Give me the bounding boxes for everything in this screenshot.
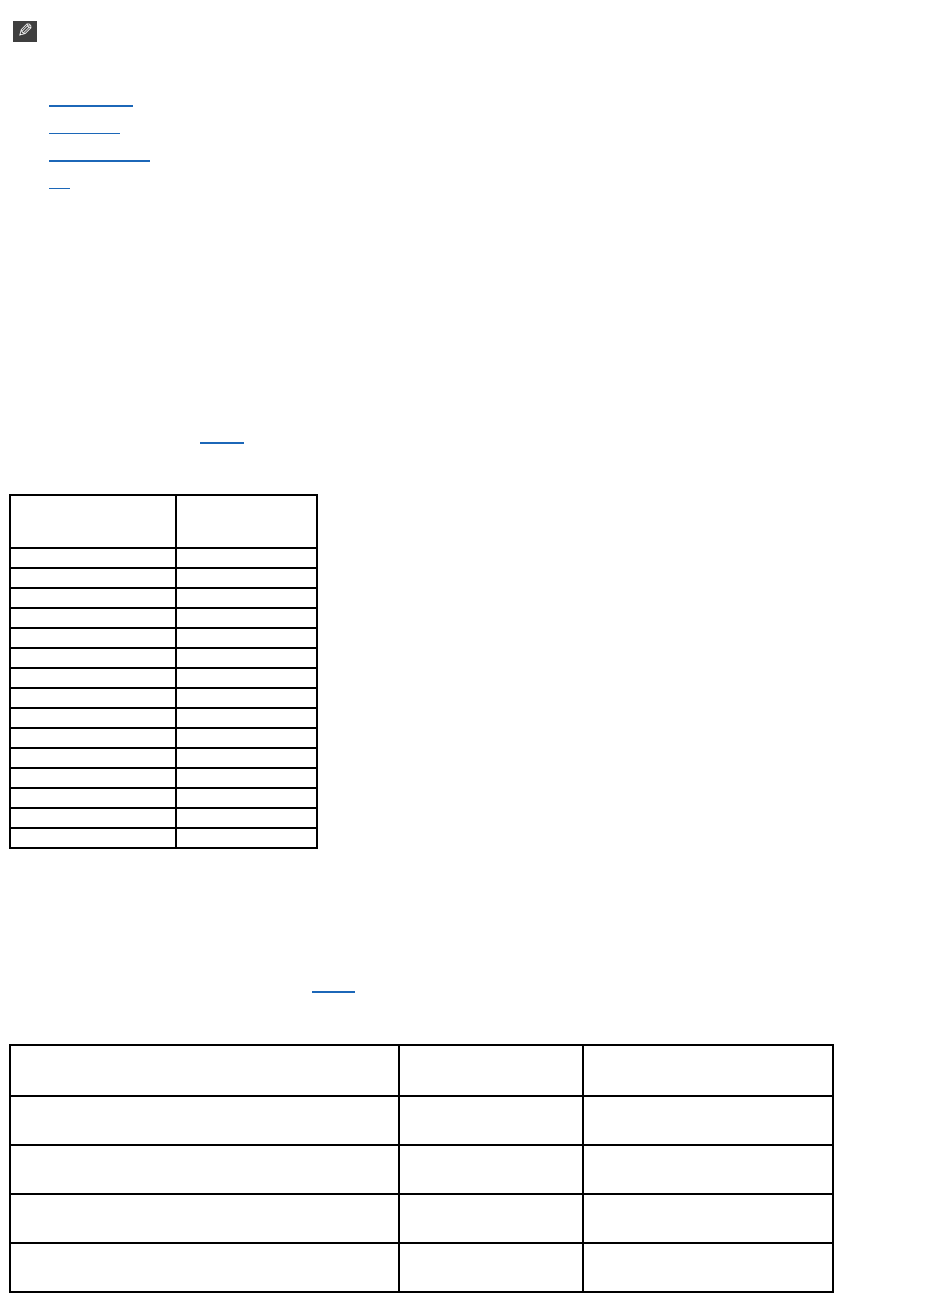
table-row <box>10 648 317 668</box>
table-header-cell <box>583 1045 833 1096</box>
table-row <box>10 628 317 648</box>
table-cell <box>10 628 176 648</box>
table-row <box>10 588 317 608</box>
page: ✎ <box>0 0 936 1296</box>
table-row <box>10 1096 833 1145</box>
table-row <box>10 728 317 748</box>
table-row <box>10 568 317 588</box>
table-cell <box>10 1145 399 1194</box>
table-cell <box>10 788 176 808</box>
table-cell <box>176 668 317 688</box>
table-cell <box>176 588 317 608</box>
table-cell <box>10 588 176 608</box>
table-row <box>10 1145 833 1194</box>
table-row <box>10 548 317 568</box>
table-cell <box>176 688 317 708</box>
table-cell <box>10 768 176 788</box>
table-cell <box>10 748 176 768</box>
table-row <box>10 788 317 808</box>
table-cell <box>176 728 317 748</box>
nav-link-3[interactable] <box>49 160 150 162</box>
table-cell <box>10 608 176 628</box>
table-cell <box>176 808 317 828</box>
note-icon: ✎ <box>13 21 37 42</box>
table-cell <box>10 708 176 728</box>
table-cell <box>176 628 317 648</box>
inline-link-2[interactable] <box>312 991 355 993</box>
table-row <box>10 708 317 728</box>
nav-link-1[interactable] <box>49 105 133 107</box>
table-2-header <box>10 1045 833 1096</box>
table-2-body <box>10 1096 833 1292</box>
table-row <box>10 1243 833 1292</box>
inline-link-1[interactable] <box>200 442 244 444</box>
table-cell <box>583 1243 833 1292</box>
table-header-cell <box>176 495 317 548</box>
nav-link-4[interactable] <box>49 188 70 190</box>
table-cell <box>10 1243 399 1292</box>
table-1-header <box>10 495 317 548</box>
table-cell <box>176 748 317 768</box>
table-cell <box>176 828 317 848</box>
table-row <box>10 768 317 788</box>
specs-table-2 <box>9 1044 834 1293</box>
table-cell <box>176 708 317 728</box>
table-1-body <box>10 548 317 848</box>
table-header-row <box>10 495 317 548</box>
nav-link-2[interactable] <box>49 133 120 135</box>
table-cell <box>10 648 176 668</box>
specs-table-1 <box>9 494 318 849</box>
table-cell <box>176 608 317 628</box>
table-cell <box>399 1194 583 1243</box>
table-cell <box>10 1096 399 1145</box>
table-cell <box>10 568 176 588</box>
table-header-cell <box>399 1045 583 1096</box>
table-cell <box>10 688 176 708</box>
table-row <box>10 748 317 768</box>
table-cell <box>399 1243 583 1292</box>
table-cell <box>399 1096 583 1145</box>
table-cell <box>10 1194 399 1243</box>
table-cell <box>10 808 176 828</box>
table-cell <box>10 548 176 568</box>
table-header-cell <box>10 495 176 548</box>
table-cell <box>176 788 317 808</box>
table-row <box>10 808 317 828</box>
table-row <box>10 688 317 708</box>
table-cell <box>10 728 176 748</box>
table-cell <box>10 668 176 688</box>
table-cell <box>399 1145 583 1194</box>
table-header-row <box>10 1045 833 1096</box>
table-cell <box>176 568 317 588</box>
table-cell <box>583 1145 833 1194</box>
table-cell <box>176 768 317 788</box>
table-cell <box>583 1096 833 1145</box>
table-row <box>10 668 317 688</box>
table-cell <box>10 828 176 848</box>
table-row <box>10 608 317 628</box>
table-row <box>10 828 317 848</box>
table-cell <box>583 1194 833 1243</box>
table-cell <box>176 648 317 668</box>
table-cell <box>176 548 317 568</box>
table-header-cell <box>10 1045 399 1096</box>
table-row <box>10 1194 833 1243</box>
nav-links <box>49 105 150 215</box>
